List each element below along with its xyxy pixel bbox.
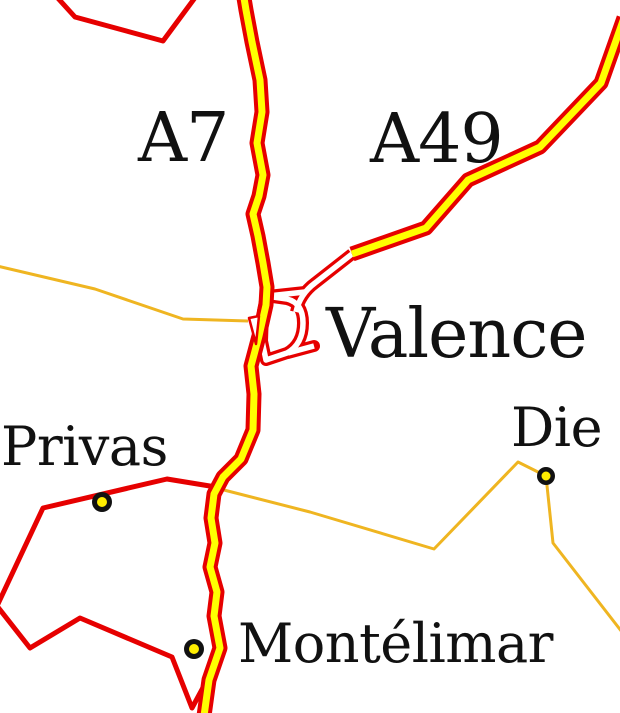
montelimar-city-label: Montélimar [238,612,554,675]
die-marker-dot [542,472,551,481]
secondary-road-die [220,462,620,632]
privas-marker-dot [97,497,107,507]
a49-motorway-label: A49 [369,100,503,179]
privas-city-label: Privas [1,415,168,478]
red-road-north [55,0,197,41]
road-map: A7 A49 Valence Privas Die Montélimar [0,0,620,713]
valence-city-label: Valence [325,295,587,374]
a7-motorway-label: A7 [137,99,228,178]
secondary-road-west [0,266,248,321]
red-road-privas [0,479,222,708]
montelimar-marker-dot [189,644,199,654]
privas-city-marker [92,492,112,512]
montelimar-city-marker [184,639,204,659]
die-city-marker [537,467,555,485]
die-city-label: Die [511,396,602,459]
